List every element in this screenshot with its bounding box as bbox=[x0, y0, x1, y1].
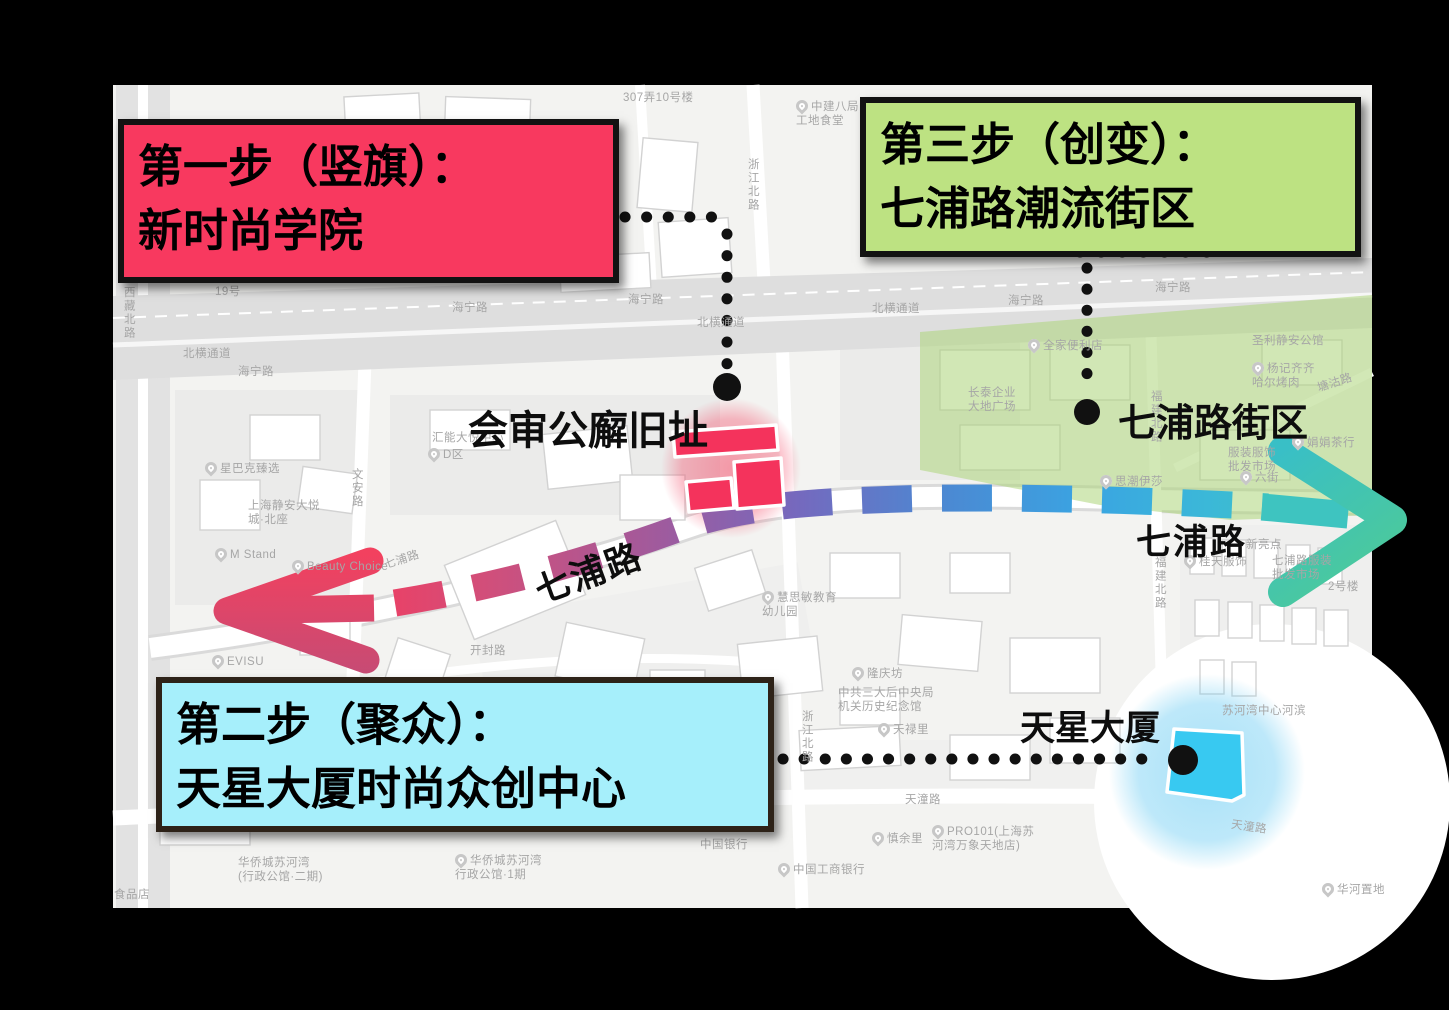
step2-callout: 第二步（聚众）： 天星大厦时尚众创中心 bbox=[156, 677, 774, 832]
slide-canvas: 307弄10号楼19号中建八局 工地食堂浙江北路西藏北路北横通道海宁路海宁路海宁… bbox=[0, 0, 1449, 1010]
step1-callout: 第一步（竖旗）： 新时尚学院 bbox=[118, 119, 619, 283]
step2-title-line2: 天星大厦时尚众创中心 bbox=[176, 757, 754, 821]
step3-title-line2: 七浦路潮流街区 bbox=[880, 177, 1341, 241]
step1-title-line2: 新时尚学院 bbox=[138, 199, 599, 263]
step3-title-line1: 第三步（创变）： bbox=[880, 113, 1341, 177]
step1-title-line1: 第一步（竖旗）： bbox=[138, 135, 599, 199]
step3-callout: 第三步（创变）： 七浦路潮流街区 bbox=[860, 97, 1361, 257]
step2-title-line1: 第二步（聚众）： bbox=[176, 693, 754, 757]
